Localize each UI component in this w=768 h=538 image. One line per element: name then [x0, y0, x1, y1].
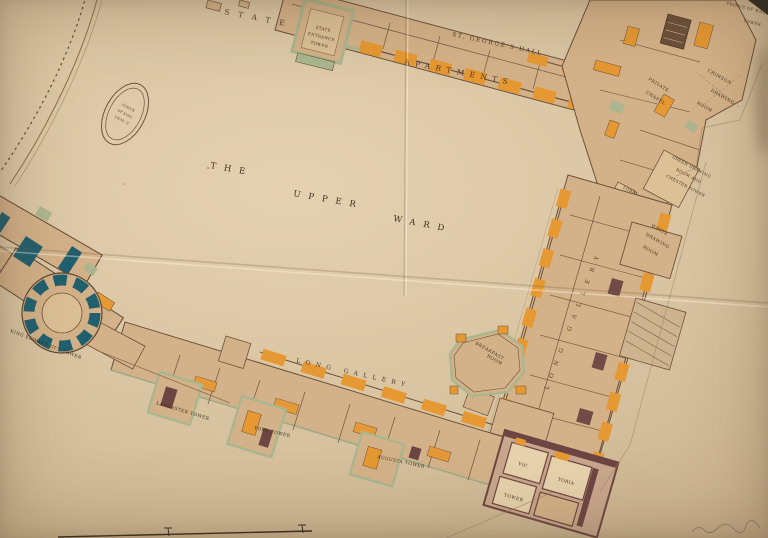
castle-plan-photo: STATUE OF KING CHAS. II STATE AND ST. GE… [0, 0, 768, 538]
scale-bar [58, 525, 312, 537]
upper-ward-title: THE UPPER WARD [209, 161, 452, 235]
title-ward: WARD [392, 214, 452, 235]
photo-edge-shadow [754, 45, 768, 155]
dotted-boundary [0, 0, 86, 172]
title-the: THE [209, 161, 253, 178]
paper-speck [207, 167, 209, 169]
northeast-cluster: PRINCE OF WALES TOWER PRIVATE CHAPEL CRI… [562, 0, 768, 208]
pencil-note-squiggle [692, 520, 760, 532]
photo-corner-shadow [748, 0, 768, 15]
statue-marker: STATUE OF KING CHAS. II [92, 75, 158, 152]
title-upper: UPPER [292, 189, 364, 211]
park-boundary-path [0, 0, 103, 186]
plan-svg: STATUE OF KING CHAS. II STATE AND ST. GE… [0, 0, 768, 538]
paper-speck-2 [123, 183, 125, 185]
